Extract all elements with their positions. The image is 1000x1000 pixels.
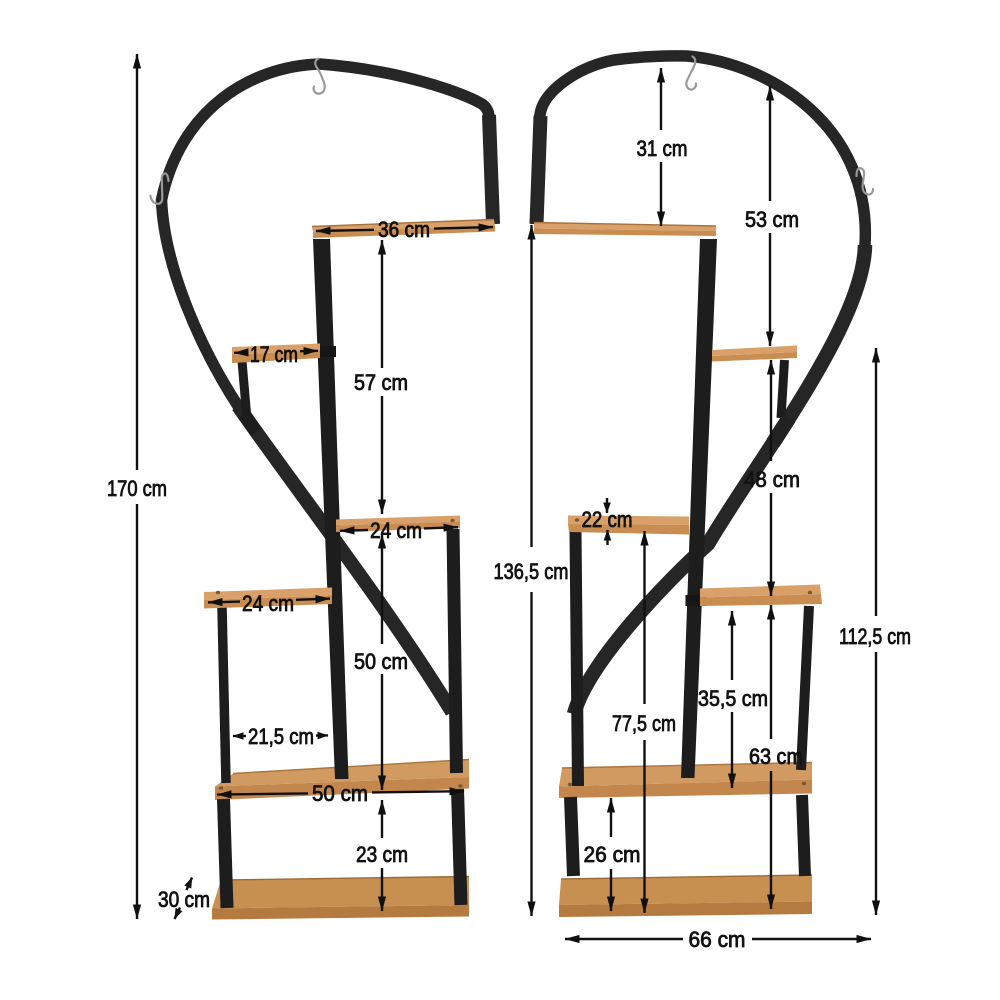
svg-text:57 cm: 57 cm xyxy=(354,370,408,395)
svg-text:21,5 cm: 21,5 cm xyxy=(248,724,314,749)
svg-text:31 cm: 31 cm xyxy=(637,136,688,161)
svg-text:50 cm: 50 cm xyxy=(312,781,368,806)
svg-text:26 cm: 26 cm xyxy=(584,842,641,867)
svg-text:36 cm: 36 cm xyxy=(378,217,430,242)
svg-text:63 cm: 63 cm xyxy=(749,744,803,769)
svg-text:30 cm: 30 cm xyxy=(158,887,210,912)
svg-text:35,5 cm: 35,5 cm xyxy=(698,686,768,711)
svg-text:53 cm: 53 cm xyxy=(745,207,799,232)
svg-text:77,5 cm: 77,5 cm xyxy=(612,711,676,736)
svg-text:170 cm: 170 cm xyxy=(107,476,167,501)
svg-text:66 cm: 66 cm xyxy=(689,927,746,952)
svg-text:112,5 cm: 112,5 cm xyxy=(839,624,911,649)
svg-text:24 cm: 24 cm xyxy=(370,518,422,543)
svg-text:17 cm: 17 cm xyxy=(250,342,298,367)
svg-text:48 cm: 48 cm xyxy=(744,467,800,492)
svg-text:22 cm: 22 cm xyxy=(582,507,633,532)
svg-text:50 cm: 50 cm xyxy=(354,649,408,674)
svg-text:24 cm: 24 cm xyxy=(242,591,294,616)
svg-text:136,5 cm: 136,5 cm xyxy=(494,559,569,584)
svg-text:23 cm: 23 cm xyxy=(356,842,408,867)
